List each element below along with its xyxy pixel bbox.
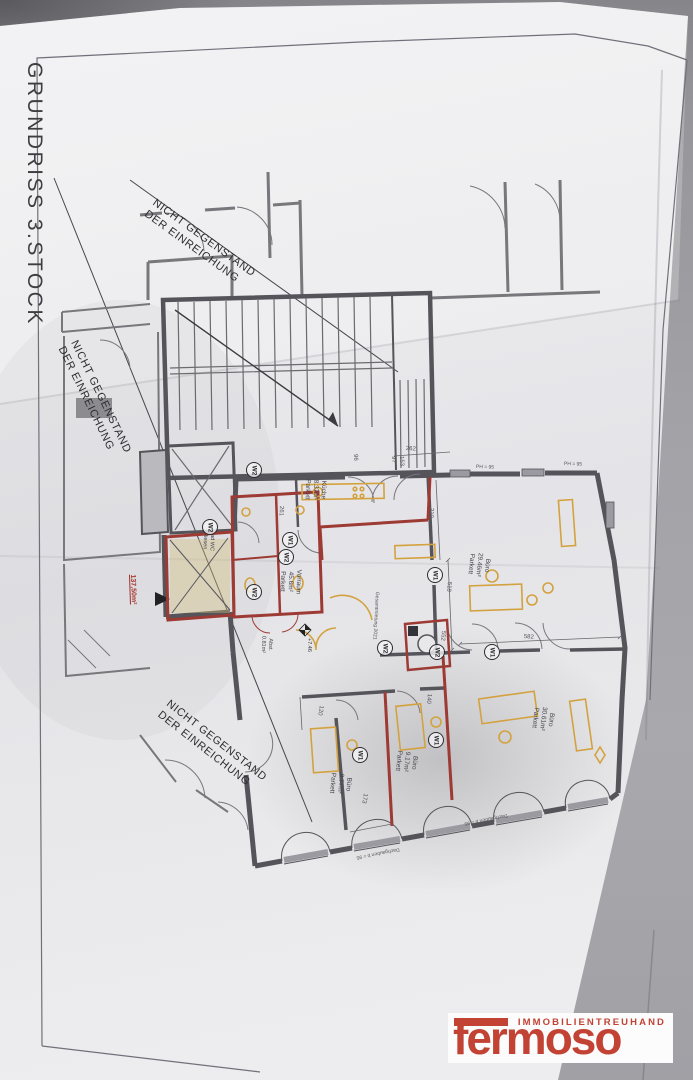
dimension-label: 210	[428, 508, 434, 518]
dimension-label: 262	[406, 446, 416, 453]
window-marker-label: W1	[489, 647, 496, 657]
window-marker-label: W1	[433, 735, 440, 745]
window-marker: W2	[429, 644, 445, 660]
window-marker: W1	[282, 532, 298, 548]
dimension-label: 518	[445, 581, 452, 592]
logo-brand: fermoso	[453, 1015, 620, 1061]
dimension-label: 140	[425, 693, 432, 704]
room-label-buero-4: Büro 9.77m² Parkett	[328, 772, 353, 795]
room-name: Vorraum	[294, 570, 303, 595]
room-name: Küche	[319, 480, 328, 501]
window-marker-label: W2	[207, 522, 214, 532]
window-marker: W1	[427, 567, 443, 583]
window-marker-label: W1	[357, 750, 364, 760]
window-marker: W1	[484, 644, 500, 660]
room-label-abstellraum: Abst. 0.81m²	[260, 636, 274, 654]
room-label-buero-3: Büro 9.17m² Parkett	[393, 750, 419, 773]
room-label-vorraum: Vorraum 45.6m² Parkett	[278, 569, 302, 594]
dimension-label: 582	[524, 634, 534, 641]
dimension-label: 96	[352, 454, 358, 461]
dimension-label: 153	[398, 456, 404, 466]
room-floor: Parkett	[303, 479, 312, 500]
room-area: 0.81m²	[260, 636, 267, 653]
window-marker-label: W2	[382, 643, 389, 653]
window-marker: W2	[278, 549, 294, 565]
room-label-kueche: Küche 8.37m² Parkett	[303, 479, 327, 500]
window-marker: W1	[428, 732, 444, 748]
dimension-label: 552	[439, 630, 446, 641]
window-marker-label: W2	[283, 552, 290, 562]
window-marker-label: W2	[251, 587, 258, 597]
page-title: GRUNDRISS 3.STOCK	[22, 62, 46, 326]
dimension-label: PH = 95	[564, 461, 582, 468]
window-marker: W2	[246, 462, 262, 478]
window-marker-label: W2	[251, 465, 258, 475]
room-name: Abst.	[266, 636, 273, 653]
level-marker-label: +7.46	[306, 638, 312, 652]
dimension-label: 261	[278, 506, 284, 516]
window-marker: W2	[246, 584, 262, 600]
room-area: 45.6m²	[286, 569, 295, 594]
window-marker: W2	[377, 640, 393, 656]
window-marker: W2	[202, 519, 218, 535]
fermoso-logo: IMMOBILIENTREUHAND fermoso	[448, 1013, 673, 1063]
total-area-label: 137,50m²	[129, 574, 137, 604]
dimension-label: PH = 95	[476, 464, 494, 471]
room-label-buero-1: Büro 29.46m² Parkett	[466, 552, 492, 578]
window-marker-label: W1	[432, 570, 439, 580]
window-marker-label: W1	[287, 535, 294, 545]
window-marker: W1	[352, 747, 368, 763]
room-floor: Parkett	[278, 569, 287, 594]
window-marker-label: W2	[434, 647, 441, 657]
room-area: 8.37m²	[311, 479, 320, 500]
room-label-buero-2: Büro 30.61m² Parkett	[530, 705, 556, 732]
photo-background: GRUNDRISS 3.STOCK NICHT GEGENSTAND DER E…	[0, 0, 693, 1080]
dimension-label: 97	[390, 456, 396, 463]
floor-plan-drawing	[0, 0, 693, 1080]
